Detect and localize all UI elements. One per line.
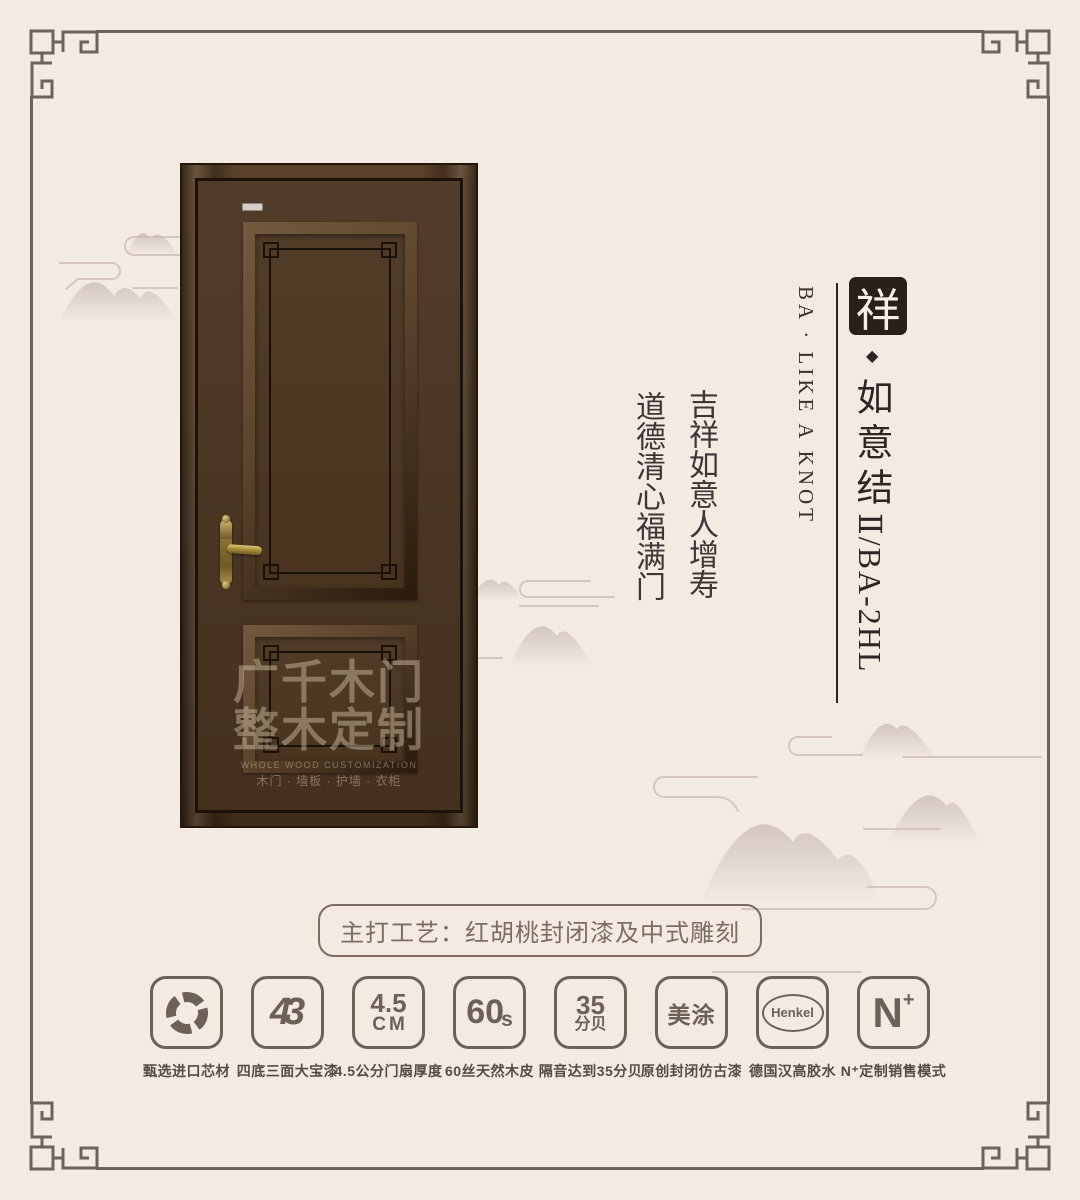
fret-corner-square [263, 242, 279, 258]
frame-border-left [30, 96, 33, 1104]
watermark-english-line: WHOLE WOOD CUSTOMIZATION [233, 760, 425, 770]
fret-corner-square [381, 242, 397, 258]
feature-paint-coats: 43 四底三面大宝漆 [251, 976, 324, 1049]
fret-corner-square [263, 564, 279, 580]
feature-label: 原创封闭仿古漆 [641, 1061, 743, 1081]
feature-label: N⁺定制销售模式 [841, 1061, 947, 1081]
feature-label: 隔音达到35分贝 [539, 1061, 643, 1081]
brand-seal: 祥 [849, 277, 907, 335]
watermark-product-line: 木门 · 墙板 · 护墙 · 衣柜 [233, 772, 425, 789]
n-plus-icon: N+ [857, 976, 930, 1049]
product-title-name: 如意结 [850, 378, 891, 513]
seal-character: 祥 [855, 274, 900, 339]
door-photo: 广千木门 整木定制 WHOLE WOOD CUSTOMIZATION 木门 · … [180, 163, 478, 828]
feature-antique-paint: 美涂 原创封闭仿古漆 [655, 976, 728, 1049]
corner-ornament-top-left [0, 0, 110, 110]
feature-soundproof: 35 分贝 隔音达到35分贝 [554, 976, 627, 1049]
door-upper-panel-field [255, 234, 405, 588]
corner-ornament-top-right [970, 0, 1080, 110]
corner-ornament-bottom-right [970, 1090, 1080, 1200]
frame-border-top [96, 30, 984, 33]
door-brand-plate [242, 203, 263, 211]
watermark-brand-tagline: 整木定制 [233, 706, 425, 754]
couplet-line-left: 道德清心福满门 [631, 391, 664, 601]
35db-icon: 35 分贝 [554, 976, 627, 1049]
product-subtitle-english: BA · LIKE A KNOT [793, 286, 818, 525]
feature-label: 4.5公分门扇厚度 [335, 1061, 443, 1081]
43-icon: 43 [251, 976, 324, 1049]
henkel-icon: Henkel [756, 976, 829, 1049]
title-divider-line [836, 283, 838, 703]
feature-veneer: 60s 60丝天然木皮 [453, 976, 526, 1049]
feature-label: 德国汉高胶水 [749, 1061, 836, 1081]
craft-banner: 主打工艺：红胡桃封闭漆及中式雕刻 [318, 904, 762, 957]
45cm-icon: 4.5 CM [352, 976, 425, 1049]
couplet-line-right: 吉祥如意人增寿 [684, 389, 717, 599]
feature-thickness: 4.5 CM 4.5公分门扇厚度 [352, 976, 425, 1049]
meitu-icon: 美涂 [655, 976, 728, 1049]
feature-label: 四底三面大宝漆 [237, 1061, 339, 1081]
frame-border-bottom [96, 1167, 984, 1170]
feature-henkel-glue: Henkel 德国汉高胶水 [756, 976, 829, 1049]
door-upper-panel [243, 222, 417, 600]
watermark-brand-name: 广千木门 [233, 658, 425, 706]
product-title: 如意结Ⅱ/BA-2HL [852, 378, 889, 673]
aperture-icon [150, 976, 223, 1049]
door-upper-panel-fret-inlay [269, 248, 391, 574]
feature-core-material: 甄选进口芯材 [150, 976, 223, 1049]
fret-corner-square [381, 564, 397, 580]
diamond-icon: ◆ [866, 346, 878, 366]
feature-n-plus-sales: N+ N⁺定制销售模式 [857, 976, 930, 1049]
60s-icon: 60s [453, 976, 526, 1049]
feature-label: 60丝天然木皮 [445, 1061, 534, 1081]
frame-border-right [1047, 96, 1050, 1104]
corner-ornament-bottom-left [0, 1090, 110, 1200]
product-title-code: Ⅱ/BA-2HL [852, 513, 888, 673]
feature-label: 甄选进口芯材 [143, 1061, 230, 1081]
brand-watermark: 广千木门 整木定制 WHOLE WOOD CUSTOMIZATION 木门 · … [233, 658, 425, 789]
feature-row: 甄选进口芯材 43 四底三面大宝漆 4.5 CM 4.5公分门扇厚度 60s 6… [0, 976, 1080, 1049]
poster: 广千木门 整木定制 WHOLE WOOD CUSTOMIZATION 木门 · … [0, 0, 1080, 1200]
